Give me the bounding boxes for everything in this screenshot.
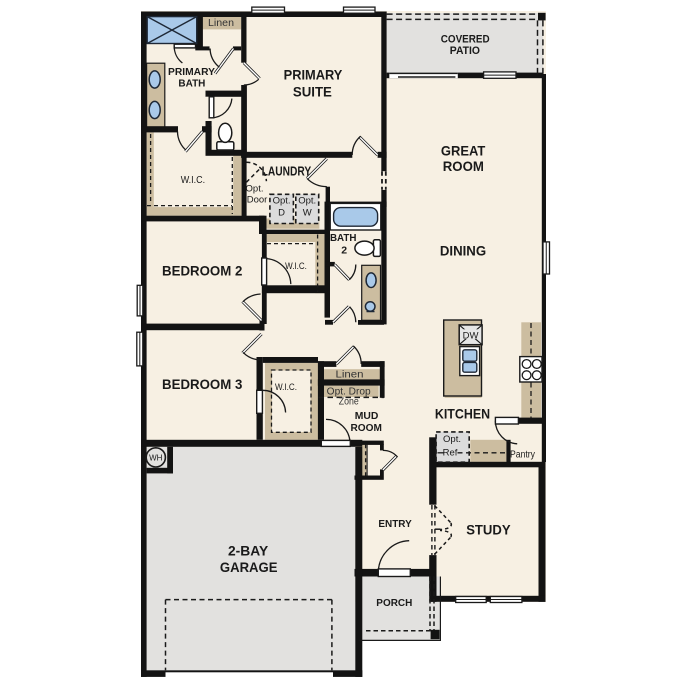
svg-text:BATH: BATH	[330, 232, 357, 244]
svg-text:ENTRY: ENTRY	[378, 519, 412, 530]
svg-text:D: D	[278, 208, 285, 219]
svg-text:Linen: Linen	[208, 18, 234, 29]
svg-text:WH: WH	[149, 453, 163, 462]
svg-text:KITCHEN: KITCHEN	[435, 405, 490, 421]
svg-text:DW: DW	[463, 330, 479, 341]
svg-text:PATIO: PATIO	[450, 45, 481, 57]
svg-text:COVERED: COVERED	[441, 34, 490, 46]
svg-text:Linen: Linen	[336, 370, 364, 381]
svg-text:Opt.: Opt.	[443, 434, 461, 445]
svg-text:ROOM: ROOM	[351, 423, 382, 434]
svg-text:SUITE: SUITE	[293, 84, 332, 100]
svg-text:DINING: DINING	[440, 243, 486, 259]
svg-text:Door: Door	[247, 195, 268, 206]
svg-text:Opt.: Opt.	[273, 196, 291, 207]
svg-text:MUD: MUD	[355, 411, 379, 422]
svg-text:BATH: BATH	[178, 78, 205, 90]
svg-text:Ref: Ref	[443, 448, 458, 459]
svg-text:Zone: Zone	[339, 397, 359, 408]
svg-text:2-BAY: 2-BAY	[228, 543, 269, 559]
svg-text:Opt.: Opt.	[298, 196, 316, 207]
svg-text:GARAGE: GARAGE	[220, 559, 278, 575]
svg-text:BEDROOM 2: BEDROOM 2	[162, 262, 242, 278]
svg-text:BEDROOM 3: BEDROOM 3	[162, 376, 242, 392]
svg-text:Opt.: Opt.	[246, 184, 264, 195]
svg-text:W.I.C.: W.I.C.	[285, 261, 307, 272]
svg-text:W: W	[303, 208, 312, 219]
svg-text:2: 2	[341, 245, 347, 257]
svg-text:GREAT: GREAT	[441, 143, 486, 159]
svg-text:W.I.C.: W.I.C.	[181, 175, 205, 186]
svg-text:W.I.C.: W.I.C.	[275, 382, 297, 393]
svg-text:PRIMARY: PRIMARY	[168, 66, 215, 78]
svg-text:PRIMARY: PRIMARY	[284, 66, 343, 82]
svg-text:ROOM: ROOM	[443, 158, 484, 174]
svg-text:LAUNDRY: LAUNDRY	[262, 164, 312, 178]
svg-text:STUDY: STUDY	[466, 522, 510, 537]
svg-text:PORCH: PORCH	[376, 597, 412, 609]
svg-text:Pantry: Pantry	[510, 450, 535, 461]
